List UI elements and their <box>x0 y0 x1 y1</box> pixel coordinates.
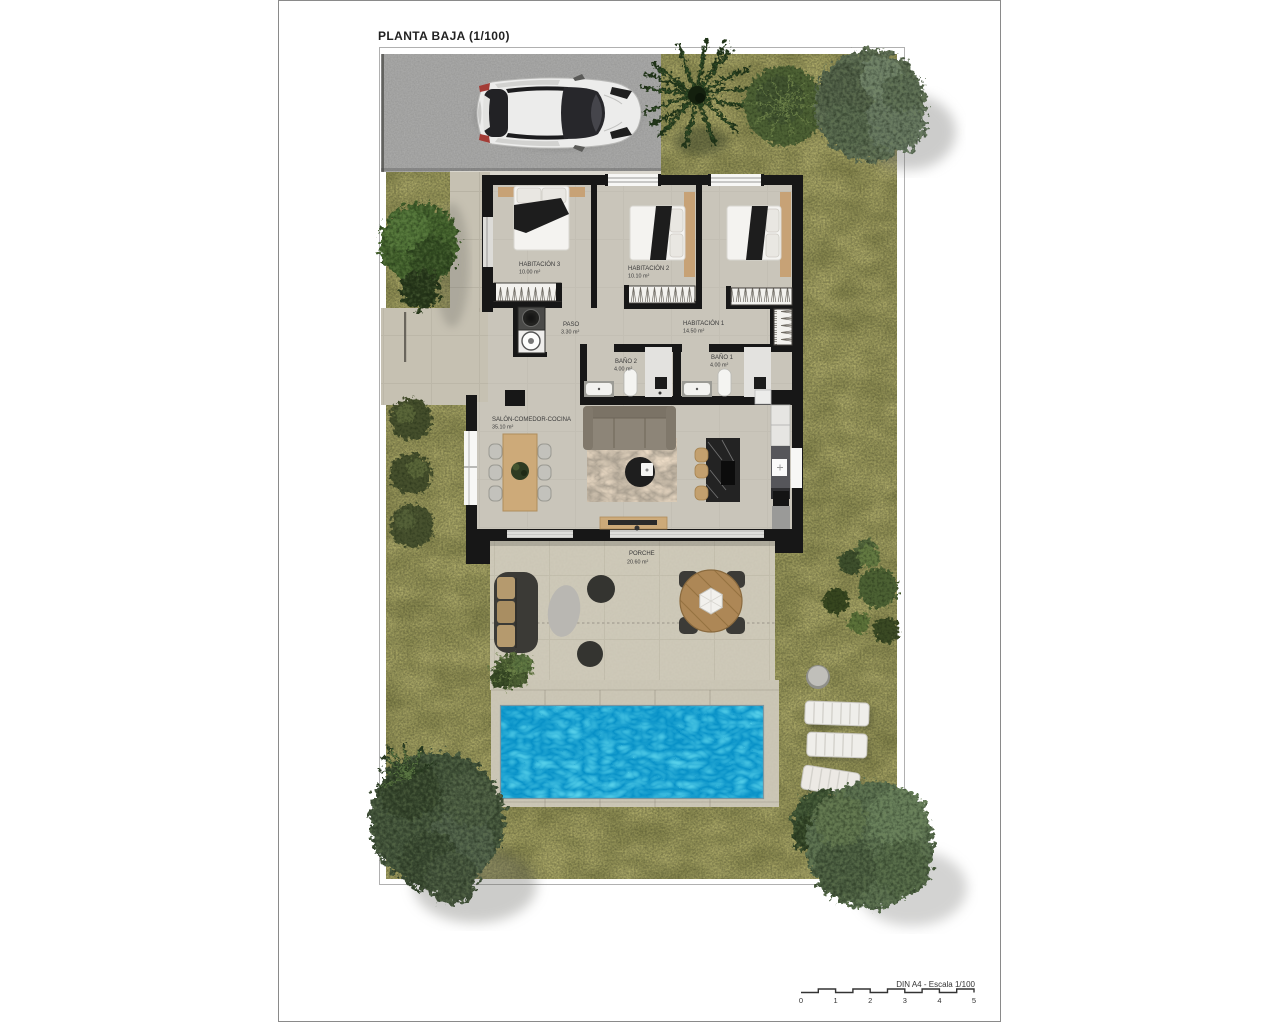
svg-text:PORCHE: PORCHE <box>629 551 655 557</box>
svg-text:DIN A4 - Escala 1/100: DIN A4 - Escala 1/100 <box>896 980 975 989</box>
svg-text:0: 0 <box>799 996 803 1005</box>
svg-text:20.60 m²: 20.60 m² <box>627 560 648 566</box>
svg-text:HABITACIÓN 1: HABITACIÓN 1 <box>683 320 725 327</box>
svg-text:BAÑO 2: BAÑO 2 <box>615 358 638 365</box>
svg-text:BAÑO 1: BAÑO 1 <box>711 354 734 361</box>
svg-text:10.10 m²: 10.10 m² <box>628 274 649 280</box>
svg-text:4.00 m²: 4.00 m² <box>710 363 728 369</box>
svg-text:4.00 m²: 4.00 m² <box>614 367 632 373</box>
svg-text:PASO: PASO <box>563 322 580 328</box>
svg-text:5: 5 <box>972 996 976 1005</box>
svg-text:14.50 m²: 14.50 m² <box>683 329 704 335</box>
svg-text:1: 1 <box>834 996 838 1005</box>
svg-text:4: 4 <box>937 996 941 1005</box>
svg-text:35.10 m²: 35.10 m² <box>492 425 513 431</box>
svg-text:HABITACIÓN 3: HABITACIÓN 3 <box>519 261 561 268</box>
svg-text:HABITACIÓN 2: HABITACIÓN 2 <box>628 265 670 272</box>
svg-text:3: 3 <box>903 996 907 1005</box>
svg-text:2: 2 <box>868 996 872 1005</box>
svg-text:3.30 m²: 3.30 m² <box>561 330 579 336</box>
svg-text:SALÓN-COMEDOR-COCINA: SALÓN-COMEDOR-COCINA <box>492 416 571 423</box>
svg-text:PLANTA BAJA (1/100): PLANTA BAJA (1/100) <box>378 29 510 43</box>
svg-text:10.00 m²: 10.00 m² <box>519 270 540 276</box>
